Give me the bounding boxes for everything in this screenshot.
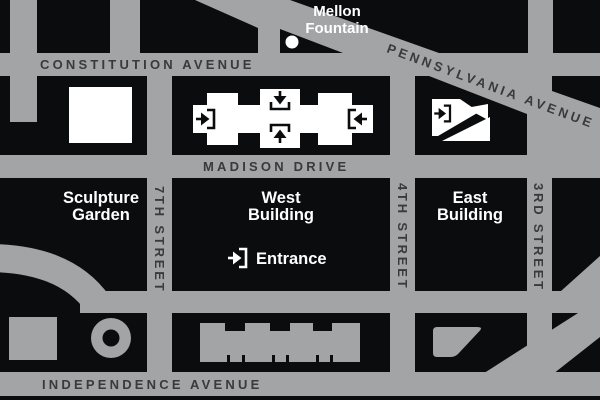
label-mellon-fountain-line1: Mellon (313, 3, 361, 20)
map-edge-strip (0, 396, 600, 400)
gray-building-square (9, 317, 57, 360)
nga-area-map: CONSTITUTION AVENUE PENNSYLVANIA AVENUE … (0, 0, 600, 400)
gray-building-crenellated (200, 323, 360, 362)
street-stub (10, 76, 37, 122)
street-label-7th: 7TH STREET (152, 186, 167, 293)
street-label-constitution: CONSTITUTION AVENUE (40, 57, 255, 72)
label-east-building-line1: East (453, 189, 488, 207)
label-west-building-line1: West (261, 189, 301, 207)
street-label-3rd: 3RD STREET (531, 183, 546, 292)
mellon-fountain-dot (286, 36, 299, 49)
building-footprint-square (69, 87, 132, 143)
label-west-building-line2: Building (248, 206, 314, 224)
label-mellon-fountain-line2: Fountain (305, 20, 368, 37)
label-entrance: Entrance (256, 250, 327, 268)
street-label-4th: 4TH STREET (395, 183, 410, 290)
block (553, 0, 600, 53)
label-east-building-line2: Building (437, 206, 503, 224)
label-sculpture-garden-line2: Garden (72, 206, 130, 224)
map-canvas: CONSTITUTION AVENUE PENNSYLVANIA AVENUE … (0, 0, 600, 400)
street-label-independence: INDEPENDENCE AVENUE (42, 377, 262, 392)
gray-building-ring-hole (103, 330, 120, 347)
block (0, 0, 10, 53)
label-sculpture-garden-line1: Sculpture (63, 189, 139, 207)
street-label-madison: MADISON DRIVE (203, 159, 349, 174)
block (37, 0, 110, 53)
